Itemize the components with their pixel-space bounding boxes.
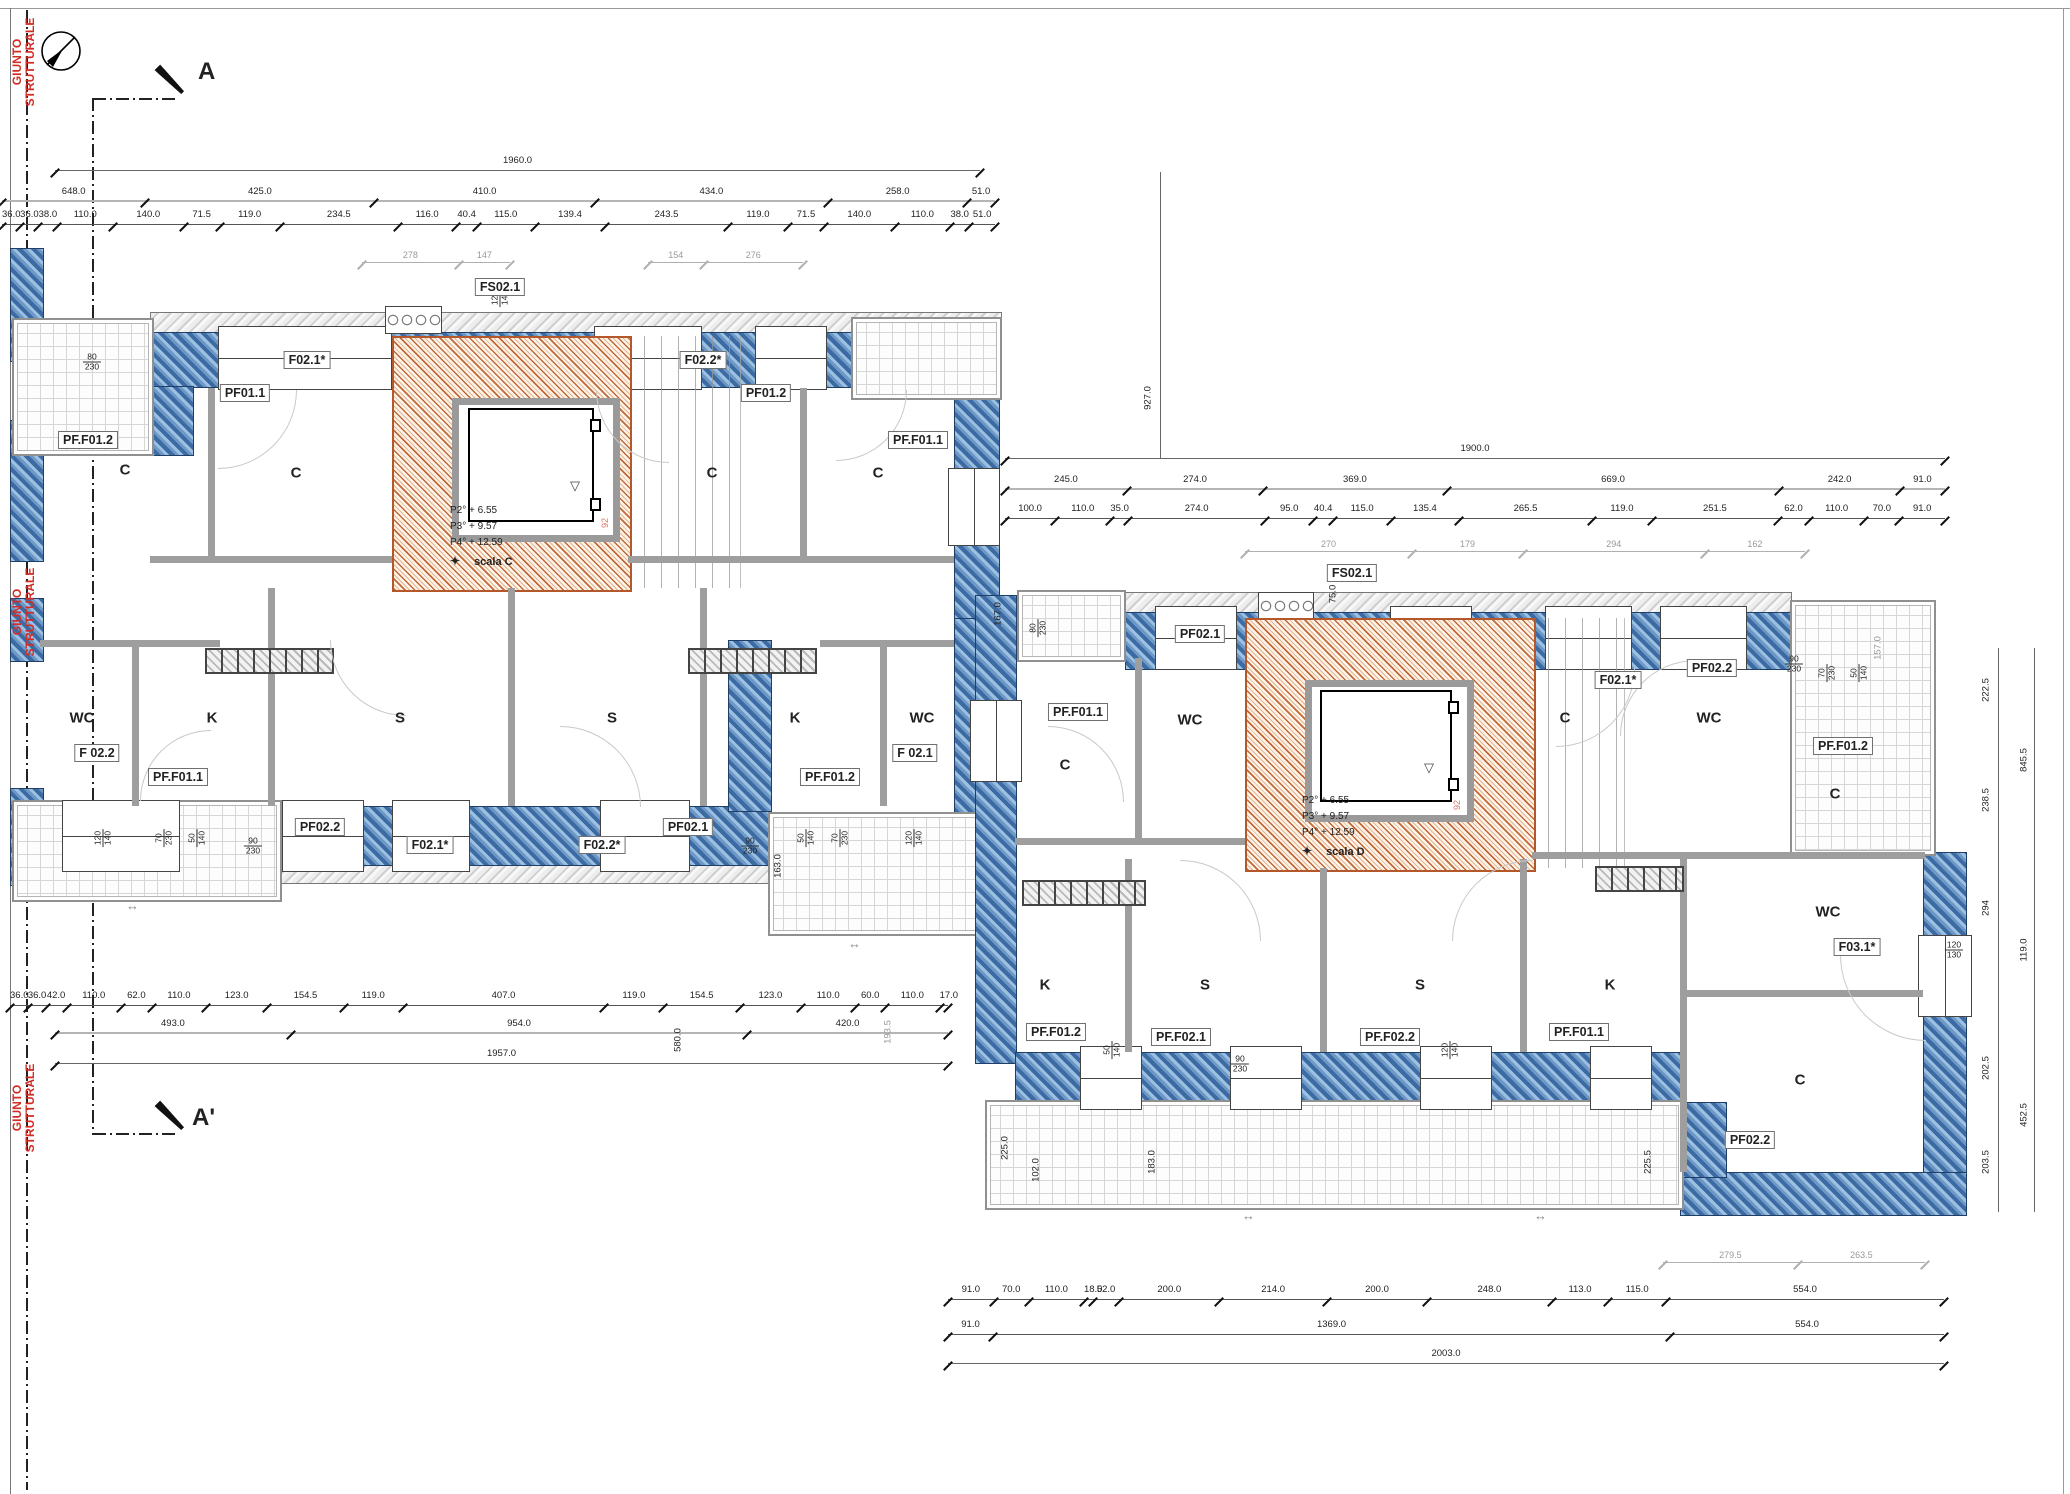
window-dim-pair: 120140 — [1441, 1041, 1460, 1059]
span-arrow-icon: ↔ — [848, 936, 861, 951]
glass-block-window — [385, 306, 442, 334]
dim-value: 119.0 — [1592, 503, 1652, 518]
opening-tag: PF.F01.1 — [1048, 703, 1108, 721]
glass-block-window — [1258, 592, 1314, 620]
span-arrow-icon: ↔ — [1242, 1208, 1255, 1223]
dim-value: 245.0 — [1005, 474, 1127, 488]
dim-value: 202.5 — [1981, 1056, 1992, 1080]
dim-value: 162 — [1705, 539, 1805, 551]
partition — [1532, 852, 1925, 859]
dim-value: 102.0 — [1031, 1158, 1042, 1182]
stair-name-label: scala D — [1326, 846, 1365, 858]
dim-value: 36.0 — [28, 990, 46, 1005]
dim-value: 100.0 — [1005, 503, 1055, 518]
dim-row-lw-bottom-minor: 36.036.042.0110.062.0110.0123.0154.5119.… — [10, 990, 948, 1006]
joint-word-1: GIUNTO — [10, 589, 24, 635]
joint-word-1: GIUNTO — [10, 1085, 24, 1131]
stair-level-line: P3° + 9.57 — [1302, 809, 1365, 825]
dim-value: 274.0 — [1128, 503, 1265, 518]
dim-row-rw-gray: 270179294162 — [1245, 539, 1805, 552]
dim-value: 242.0 — [1779, 474, 1899, 488]
dim-value: 110.0 — [152, 990, 207, 1005]
dim-value: 554.0 — [1666, 1284, 1944, 1299]
partition — [880, 644, 887, 806]
dim-value: 580.0 — [673, 1028, 684, 1052]
room-label: K — [1605, 977, 1616, 994]
dim-value: 140.0 — [824, 209, 895, 224]
dim-row-rw-bottom-minor: 91.070.0110.018.052.0200.0214.0200.0248.… — [948, 1284, 1944, 1300]
dim-value: 91.0 — [1900, 474, 1945, 488]
window — [282, 800, 364, 872]
dim-value: 154 — [648, 250, 704, 262]
north-arrow-icon — [38, 28, 84, 74]
dim-value: 274.0 — [1127, 474, 1263, 488]
dim-value: 279.5 — [1663, 1250, 1798, 1262]
dim-value: 234.5 — [280, 209, 398, 224]
dim-value: 276 — [704, 250, 803, 262]
dim-value: 110.0 — [801, 990, 856, 1005]
radiator-grill-icon — [205, 648, 334, 674]
partition — [1320, 868, 1327, 1052]
dim-value: 243.5 — [605, 209, 728, 224]
dim-line-vertical — [1998, 648, 1999, 1212]
joint-label-top: GIUNTOSTRUTTURALE — [11, 18, 37, 107]
stair-name-c: ✦scala C — [450, 554, 513, 568]
section-arrow-bottom-icon — [154, 1100, 185, 1131]
dim-value: 52.0 — [1093, 1284, 1119, 1299]
dim-value: 91.0 — [948, 1319, 993, 1334]
dim-value: 36.0 — [10, 990, 28, 1005]
stair-levels-d: P2° + 6.55P3° + 9.57P4° + 12.59 ✦scala D — [1302, 793, 1365, 858]
dim-value: 214.0 — [1219, 1284, 1326, 1299]
dim-value: 91.0 — [948, 1284, 994, 1299]
stair-level-line: P4° + 12.59 — [1302, 825, 1365, 841]
dim-value: 62.0 — [121, 990, 152, 1005]
opening-tag: F 02.1 — [892, 744, 937, 762]
partition — [208, 388, 215, 558]
dim-value: 71.5 — [184, 209, 220, 224]
dim-value: 230 — [1231, 1065, 1249, 1074]
dim-value: 110.0 — [1809, 503, 1864, 518]
dim-value: 115.0 — [1333, 503, 1391, 518]
opening-tag: PF.F01.2 — [800, 768, 860, 786]
stair-level-list: P2° + 6.55P3° + 9.57P4° + 12.59 — [450, 503, 513, 551]
opening-tag: PF02.1 — [663, 818, 713, 836]
room-label: S — [607, 710, 617, 727]
stair-mark: 92 — [1452, 800, 1462, 810]
dim-value: 230 — [165, 829, 174, 847]
dim-value: 36.0 — [20, 209, 38, 224]
dim-value: 263.5 — [1798, 1250, 1925, 1262]
stair-direction-icon: ▽ — [570, 478, 580, 494]
dim-value: 200.0 — [1327, 1284, 1427, 1299]
window-dim-pair: 70230 — [155, 829, 174, 847]
dim-value: 123.0 — [740, 990, 801, 1005]
stair-name-d: ✦scala D — [1302, 844, 1365, 858]
dim-value: 193.5 — [883, 1020, 894, 1044]
room-label: WC — [1178, 712, 1203, 729]
opening-tag: PF.F01.1 — [148, 768, 208, 786]
stair-level-line: P3° + 9.57 — [450, 519, 513, 535]
partition — [1135, 658, 1142, 838]
room-label: C — [120, 462, 131, 479]
dim-value: 110.0 — [57, 209, 112, 224]
dim-value: 18.0 — [1084, 1284, 1093, 1299]
dim-value: 225.0 — [1000, 1136, 1011, 1160]
dim-value: 265.5 — [1459, 503, 1592, 518]
dim-value: 2003.0 — [948, 1348, 1944, 1363]
window-dim-pair: 80230 — [1029, 619, 1048, 637]
window-dim-pair: 50140 — [797, 829, 816, 847]
dim-value: 70.0 — [1864, 503, 1899, 518]
dim-row-rw-top-total: 1900.0 — [1005, 443, 1945, 459]
dim-value: 140 — [1860, 664, 1869, 682]
dim-value: 140 — [1451, 1041, 1460, 1059]
opening-tag: FS02.1 — [1327, 564, 1377, 582]
dim-value: 147 — [459, 250, 510, 262]
dim-value: 91.0 — [1899, 503, 1945, 518]
wall-segment — [1680, 1172, 1967, 1216]
dim-value: 1369.0 — [993, 1319, 1670, 1334]
dim-value: 154.5 — [663, 990, 740, 1005]
dim-value: 119.0 — [220, 209, 280, 224]
wall-segment — [975, 595, 1017, 1064]
joint-word-1: GIUNTO — [10, 39, 24, 85]
elevator-car-icon — [1320, 690, 1452, 802]
stair-level-line: P2° + 6.55 — [450, 503, 513, 519]
dim-row-lw-top-major: 648.0425.0410.0434.0258.051.0 — [2, 186, 995, 202]
window-dim-pair: 120140 — [905, 829, 924, 847]
frame-left-line — [10, 8, 11, 1494]
dim-value: 51.0 — [969, 209, 995, 224]
dim-value: 116.0 — [398, 209, 457, 224]
opening-tag: F03.1* — [1834, 938, 1881, 956]
dim-value: 167.0 — [993, 602, 1004, 626]
dim-value: 163.0 — [773, 854, 784, 878]
dim-value: 410.0 — [374, 186, 594, 200]
dim-value: 110.0 — [1029, 1284, 1084, 1299]
dim-value: 38.0 — [38, 209, 57, 224]
dim-value: 251.5 — [1652, 503, 1778, 518]
dim-value: 434.0 — [595, 186, 828, 200]
dim-value: 248.0 — [1427, 1284, 1551, 1299]
wall-segment — [1680, 1102, 1727, 1178]
dim-value: 294 — [1523, 539, 1705, 551]
dim-value: 407.0 — [403, 990, 605, 1005]
room-label: WC — [1697, 710, 1722, 727]
dim-value: 42.0 — [46, 990, 67, 1005]
dim-value: 62.0 — [1778, 503, 1809, 518]
dim-value: 115.0 — [1608, 1284, 1666, 1299]
window — [948, 468, 1000, 546]
dim-value: 258.0 — [828, 186, 967, 200]
door-swing — [1180, 860, 1261, 941]
room-label: C — [707, 465, 718, 482]
dim-row-rw-bottom-total: 2003.0 — [948, 1348, 1944, 1364]
opening-tag: PF.F02.1 — [1151, 1028, 1211, 1046]
dim-value: 648.0 — [2, 186, 145, 200]
dim-value: 1960.0 — [55, 155, 980, 170]
room-label: K — [207, 710, 218, 727]
opening-tag: PF.F01.1 — [888, 431, 948, 449]
dim-line-vertical — [2034, 648, 2035, 1212]
window-dim-pair: 90230 — [1231, 1055, 1249, 1074]
partition — [1680, 852, 1687, 1172]
partition — [268, 588, 275, 806]
window-dim-pair: 120130 — [1945, 941, 1963, 960]
dim-value: 179 — [1412, 539, 1523, 551]
dim-value: 230 — [244, 847, 262, 856]
room-label: WC — [910, 710, 935, 727]
door-swing — [1840, 955, 1926, 1041]
dim-row-rw-top-major: 245.0274.0369.0669.0242.091.0 — [1005, 474, 1945, 490]
dim-value: 270 — [1245, 539, 1412, 551]
dim-value: 140.0 — [113, 209, 184, 224]
dim-value: 38.0 — [950, 209, 969, 224]
window-dim-pair: 70230 — [1818, 664, 1837, 682]
dim-value: 230 — [841, 829, 850, 847]
stair-datum-icon: ✦ — [450, 554, 460, 568]
dim-value: 845.5 — [2019, 748, 2030, 772]
opening-tag: PF01.2 — [741, 384, 791, 402]
dim-value: 230 — [1828, 664, 1837, 682]
dim-value: 452.5 — [2019, 1103, 2030, 1127]
dim-value: 140 — [198, 829, 207, 847]
wall-segment — [1923, 852, 1967, 1214]
frame-right-line — [2063, 8, 2064, 1494]
window-dim-pair: 50140 — [1850, 664, 1869, 682]
partition — [700, 588, 707, 806]
dim-value: 51.0 — [967, 186, 995, 200]
dim-value: 60.0 — [855, 990, 885, 1005]
dim-row-lw-top-total: 1960.0 — [55, 155, 980, 171]
partition — [132, 644, 139, 806]
window-dim-pair: 90230 — [741, 837, 759, 856]
partition — [820, 640, 954, 647]
dim-value: 119.0 — [2019, 938, 2030, 961]
opening-tag: PF02.2 — [295, 818, 345, 836]
stair-treads — [628, 336, 741, 588]
dim-value: 139.4 — [535, 209, 605, 224]
dim-value: 140 — [807, 829, 816, 847]
section-label-a-prime: A' — [192, 1104, 215, 1132]
dim-value: 278 — [362, 250, 459, 262]
wall-segment — [150, 386, 194, 456]
dim-value: 140 — [1113, 1041, 1122, 1059]
stair-mark: 92 — [600, 518, 610, 528]
dim-value: 493.0 — [55, 1018, 291, 1032]
dim-value: 157.0 — [1873, 636, 1884, 660]
window — [1590, 1046, 1652, 1110]
opening-tag: F02.2* — [680, 351, 727, 369]
floor-plan-sheet: GIUNTOSTRUTTURALE GIUNTOSTRUTTURALE GIUN… — [0, 0, 2070, 1494]
dim-value: 230 — [83, 363, 101, 372]
dim-value: 230 — [741, 847, 759, 856]
room-label: K — [1040, 977, 1051, 994]
dim-row-rw-top-minor: 100.0110.035.0274.095.040.4115.0135.4265… — [1005, 503, 1945, 519]
opening-tag: PF.F01.2 — [58, 431, 118, 449]
dim-value: 1957.0 — [55, 1048, 948, 1063]
stair-level-line: P2° + 6.55 — [1302, 793, 1365, 809]
balcony — [1790, 600, 1936, 856]
partition — [40, 640, 220, 647]
opening-tag: F02.1* — [284, 351, 331, 369]
dim-row-lw-gray-b: 154276 — [648, 250, 803, 263]
dim-value: 140 — [915, 829, 924, 847]
section-line — [92, 98, 94, 1135]
partition — [800, 388, 807, 558]
stair-level-list: P2° + 6.55P3° + 9.57P4° + 12.59 — [1302, 793, 1365, 841]
section-line-jog-bottom — [93, 1133, 175, 1135]
opening-tag: F02.1* — [407, 836, 454, 854]
joint-label-middle: GIUNTOSTRUTTURALE — [11, 568, 37, 657]
dim-value: 110.0 — [895, 209, 950, 224]
opening-tag: PF01.1 — [220, 384, 270, 402]
opening-tag: PF.F01.2 — [1813, 737, 1873, 755]
door-swing — [560, 726, 641, 807]
dim-value: 669.0 — [1447, 474, 1780, 488]
window-dim-pair: 90230 — [244, 837, 262, 856]
dim-value: 135.4 — [1391, 503, 1459, 518]
dim-line-vertical — [1160, 172, 1161, 458]
window-dim-pair: 70230 — [831, 829, 850, 847]
section-arrow-top-icon — [154, 64, 185, 95]
dim-value: 119.0 — [604, 990, 663, 1005]
stair-direction-icon: ▽ — [1424, 760, 1434, 776]
dim-value: 230 — [1785, 665, 1803, 674]
door-swing — [140, 730, 211, 801]
room-label: WC — [1816, 904, 1841, 921]
dim-value: 183.0 — [1147, 1150, 1158, 1174]
dim-value: 369.0 — [1263, 474, 1447, 488]
stair-levels-c: P2° + 6.55P3° + 9.57P4° + 12.59 ✦scala C — [450, 503, 513, 568]
dim-value: 200.0 — [1119, 1284, 1219, 1299]
room-label: C — [1560, 710, 1571, 727]
dim-row-lw-top-minor: 36.036.038.0110.0140.071.5119.0234.5116.… — [2, 209, 995, 225]
opening-tag: F02.1* — [1595, 671, 1642, 689]
dim-value: 40.4 — [1313, 503, 1333, 518]
room-label: C — [873, 465, 884, 482]
dim-value: 35.0 — [1110, 503, 1128, 518]
dim-value: 119.0 — [344, 990, 403, 1005]
stair-level-line: P4° + 12.59 — [450, 535, 513, 551]
dim-value: 225.5 — [1643, 1150, 1654, 1174]
opening-tag: F02.2* — [579, 836, 626, 854]
window-dim-pair: 90230 — [1785, 655, 1803, 674]
opening-tag: PF.F01.2 — [1026, 1023, 1086, 1041]
room-label: C — [1060, 757, 1071, 774]
section-line-jog-top — [93, 98, 175, 100]
stair-name-label: scala C — [474, 556, 513, 568]
dim-value: 71.5 — [788, 209, 824, 224]
radiator-grill-icon — [1595, 866, 1684, 892]
partition — [1015, 838, 1245, 845]
window — [970, 700, 1022, 782]
window — [755, 326, 827, 390]
dim-value: 110.0 — [67, 990, 122, 1005]
dim-row-lw-bottom-major: 493.0954.0420.0 — [55, 1018, 948, 1034]
dim-value: 75.0 — [1328, 585, 1339, 604]
window-dim-pair: 120140 — [94, 829, 113, 847]
room-label: WC — [70, 710, 95, 727]
room-label: C — [1830, 786, 1841, 803]
joint-label-bottom: GIUNTOSTRUTTURALE — [11, 1064, 37, 1153]
dim-value: 119.0 — [728, 209, 788, 224]
partition — [508, 588, 515, 806]
room-label: S — [1200, 977, 1210, 994]
dim-value: 70.0 — [994, 1284, 1029, 1299]
opening-tag: PF02.2 — [1687, 659, 1737, 677]
dim-value: 230 — [1039, 619, 1048, 637]
joint-word-2: STRUTTURALE — [23, 1064, 37, 1153]
partition — [150, 556, 392, 563]
dim-value: 110.0 — [1055, 503, 1110, 518]
window-dim-pair: 80230 — [83, 353, 101, 372]
dim-value: 1900.0 — [1005, 443, 1945, 458]
joint-word-2: STRUTTURALE — [23, 568, 37, 657]
window-dim-pair: 50140 — [188, 829, 207, 847]
opening-tag: PF.F02.2 — [1360, 1028, 1420, 1046]
opening-tag: F 02.2 — [74, 744, 119, 762]
dim-value: 36.0 — [2, 209, 20, 224]
door-swing — [1452, 860, 1533, 941]
dim-row-lw-gray-a: 278147 — [362, 250, 510, 263]
dim-row-rw-balcony: 279.5263.5 — [1663, 1250, 1925, 1263]
room-label: C — [291, 465, 302, 482]
section-label-a: A — [198, 58, 215, 86]
span-arrow-icon: ↔ — [126, 898, 139, 913]
dim-value: 40.4 — [456, 209, 476, 224]
dim-row-rw-bottom-major: 91.01369.0554.0 — [948, 1319, 1944, 1335]
dim-value: 110.0 — [885, 990, 940, 1005]
opening-tag: PF02.2 — [1725, 1131, 1775, 1149]
opening-tag: FS02.1 — [475, 278, 525, 296]
dim-value: 238.5 — [1981, 788, 1992, 812]
dim-value: 123.0 — [206, 990, 267, 1005]
stair-datum-icon: ✦ — [1302, 844, 1312, 858]
dim-value: 927.0 — [1143, 386, 1154, 410]
opening-tag: PF02.1 — [1175, 625, 1225, 643]
dim-row-lw-bottom-total: 1957.0 — [55, 1048, 948, 1064]
dim-value: 420.0 — [747, 1018, 948, 1032]
span-arrow-icon: ↔ — [1534, 1208, 1547, 1223]
door-swing — [330, 640, 406, 716]
window-dim-pair: 50140 — [1103, 1041, 1122, 1059]
frame-top-line — [0, 8, 2070, 9]
dim-value: 17.0 — [940, 990, 948, 1005]
dim-value: 203.5 — [1981, 1150, 1992, 1174]
radiator-grill-icon — [688, 648, 817, 674]
dim-value: 95.0 — [1265, 503, 1313, 518]
dim-value: 294 — [1981, 900, 1992, 916]
structural-joint-line — [26, 10, 28, 1490]
room-label: S — [1415, 977, 1425, 994]
partition — [628, 556, 954, 563]
room-label: C — [1795, 1072, 1806, 1089]
door-swing — [836, 390, 907, 461]
balcony — [851, 317, 1002, 400]
dim-value: 115.0 — [477, 209, 535, 224]
dim-value: 154.5 — [267, 990, 344, 1005]
dim-value: 222.5 — [1981, 678, 1992, 702]
room-label: K — [790, 710, 801, 727]
dim-value: 113.0 — [1552, 1284, 1609, 1299]
opening-tag: PF.F01.1 — [1549, 1023, 1609, 1041]
dim-value: 130 — [1945, 951, 1963, 960]
dim-value: 425.0 — [145, 186, 374, 200]
joint-word-2: STRUTTURALE — [23, 18, 37, 107]
room-label: S — [395, 710, 405, 727]
